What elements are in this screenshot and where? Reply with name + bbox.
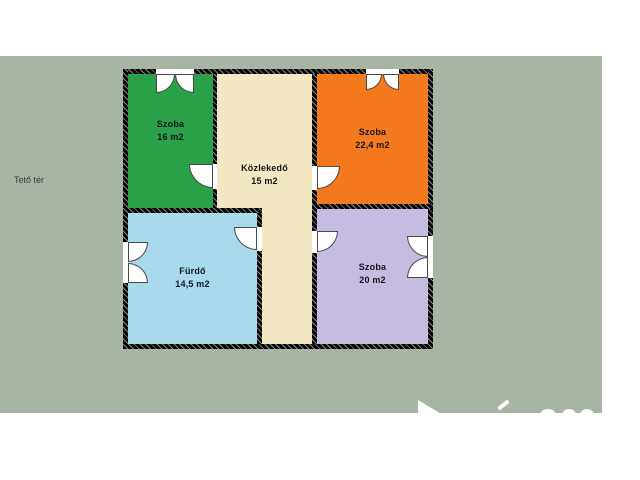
room-area: 15 m2 [217,175,312,188]
room-label-bedroom-top-left: Szoba 16 m2 [128,118,213,144]
door-opening [257,227,262,251]
watermark-logo-fragment [418,400,443,413]
room-area: 22,4 m2 [317,139,428,152]
room-name: Szoba [128,118,213,131]
wall-outer-bottom [123,344,433,349]
window-opening [428,236,433,278]
watermark-letter-fragment [580,409,594,413]
wall-bedroom-divider-right [312,204,433,209]
watermark-accent-fragment [497,399,510,410]
room-name: Fürdő [128,265,257,278]
room-name: Szoba [317,261,428,274]
room-label-bathroom: Fürdő 14,5 m2 [128,265,257,291]
wall-hallway-right [312,74,317,344]
room-area: 20 m2 [317,274,428,287]
room-name: Szoba [317,126,428,139]
room-area: 14,5 m2 [128,278,257,291]
room-name: Közlekedő [217,162,312,175]
room-area: 16 m2 [128,131,213,144]
attic-space-label: Tető tér [14,175,44,185]
wall-bedroom-bathroom [123,208,262,213]
floor-plan-image: Tető tér Szoba 16 m2 Közleked [0,0,640,480]
room-label-bedroom-bottom-right: Szoba 20 m2 [317,261,428,287]
watermark-letter-fragment [562,409,576,413]
room-label-hallway: Közlekedő 15 m2 [217,162,312,188]
watermark-letter-fragment [540,409,556,413]
room-label-bedroom-top-right: Szoba 22,4 m2 [317,126,428,152]
wall-outer-right [428,69,433,349]
